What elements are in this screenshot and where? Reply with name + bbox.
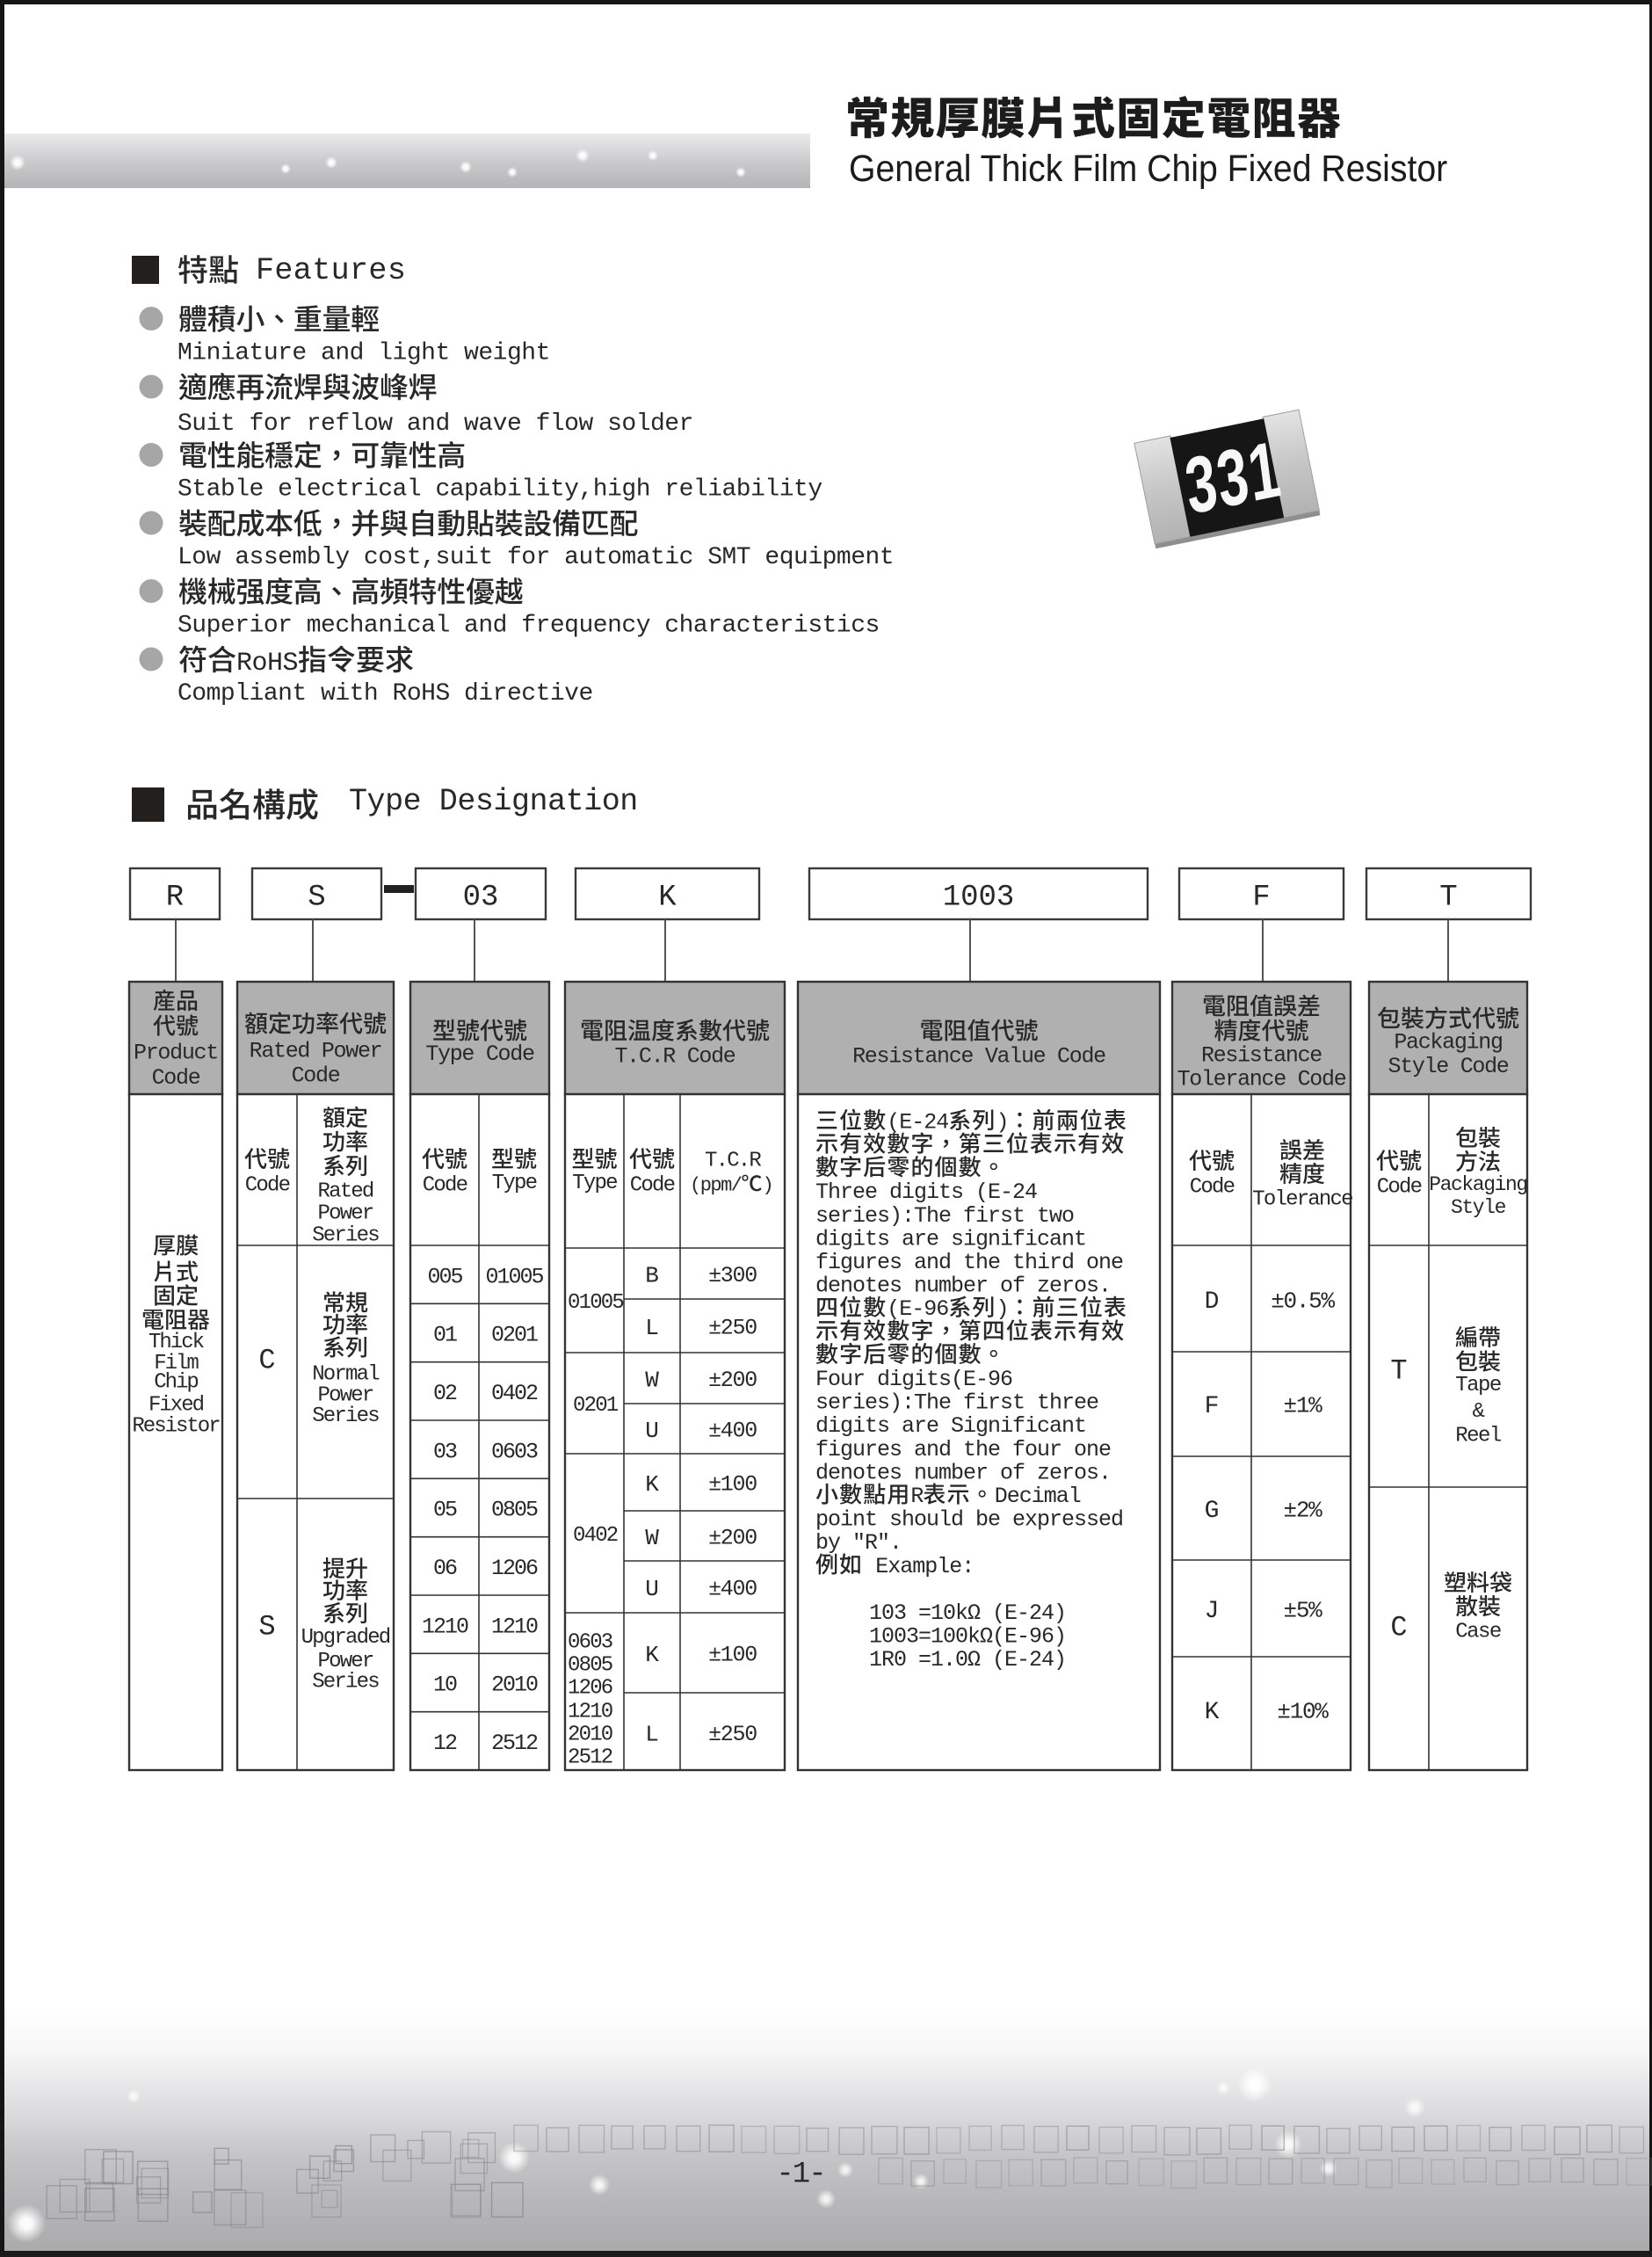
svg-text:Resistor: Resistor xyxy=(132,1415,220,1439)
svg-text:±0.5%: ±0.5% xyxy=(1271,1288,1335,1315)
svg-text:by "R".: by "R". xyxy=(815,1530,902,1556)
svg-text:1210: 1210 xyxy=(422,1614,468,1639)
svg-text:K: K xyxy=(645,1471,659,1498)
svg-text:±250: ±250 xyxy=(708,1722,757,1747)
svg-text:±300: ±300 xyxy=(708,1263,757,1288)
svg-text:T.C.R Code: T.C.R Code xyxy=(614,1044,735,1070)
svg-text:&: & xyxy=(1473,1400,1485,1424)
svg-text:digits are Significant: digits are Significant xyxy=(815,1413,1086,1439)
svg-text:U: U xyxy=(645,1576,659,1602)
svg-text:±400: ±400 xyxy=(708,1419,757,1444)
svg-text:denotes number of zeros.: denotes number of zeros. xyxy=(815,1460,1111,1485)
svg-text:): ) xyxy=(763,1175,773,1197)
svg-text:F: F xyxy=(1252,881,1270,914)
svg-text:series):The first three: series):The first three xyxy=(815,1390,1098,1416)
svg-text:01005: 01005 xyxy=(485,1264,543,1289)
svg-text:±100: ±100 xyxy=(708,1643,757,1668)
svg-text:Style Code: Style Code xyxy=(1388,1054,1508,1079)
svg-text:digits are significant: digits are significant xyxy=(815,1226,1086,1252)
svg-text:Features: Features xyxy=(256,253,406,288)
svg-text:L: L xyxy=(645,1722,659,1748)
svg-text:L: L xyxy=(645,1315,659,1341)
svg-text:figures and the four one: figures and the four one xyxy=(815,1437,1111,1462)
svg-text:Miniature and light weight: Miniature and light weight xyxy=(178,340,550,367)
svg-text:Tape: Tape xyxy=(1455,1374,1501,1397)
svg-text:Rated Power: Rated Power xyxy=(250,1039,382,1064)
svg-text:point should be expressed: point should be expressed xyxy=(815,1507,1123,1533)
svg-text:Code: Code xyxy=(152,1065,200,1091)
svg-text:Series: Series xyxy=(312,1404,379,1428)
svg-text:Code: Code xyxy=(1190,1176,1235,1200)
svg-text:±10%: ±10% xyxy=(1277,1699,1329,1725)
svg-text:Type Designation: Type Designation xyxy=(349,784,638,819)
svg-text:Four digits(E-96: Four digits(E-96 xyxy=(815,1367,1012,1392)
svg-text:±100: ±100 xyxy=(708,1472,757,1498)
svg-text:K: K xyxy=(1205,1699,1220,1726)
svg-text:G: G xyxy=(1205,1498,1220,1525)
svg-text:Decimal: Decimal xyxy=(995,1484,1081,1509)
svg-text:0201: 0201 xyxy=(491,1323,538,1348)
svg-text:General Thick Film Chip Fixed: General Thick Film Chip Fixed Resistor xyxy=(849,147,1448,189)
svg-text:Case: Case xyxy=(1455,1621,1501,1644)
svg-text:Low assembly cost,suit for aut: Low assembly cost,suit for automatic SMT… xyxy=(178,544,894,571)
svg-text:B: B xyxy=(645,1263,659,1289)
svg-text:): ) xyxy=(996,1109,1009,1135)
svg-text:Reel: Reel xyxy=(1455,1425,1502,1448)
svg-text:R: R xyxy=(166,881,184,914)
svg-text:06: 06 xyxy=(433,1556,457,1581)
svg-text:S: S xyxy=(258,1611,275,1644)
svg-text:Style: Style xyxy=(1451,1196,1506,1219)
svg-text:Code: Code xyxy=(1377,1176,1422,1200)
svg-text:103 =10kΩ (E-24): 103 =10kΩ (E-24) xyxy=(869,1600,1066,1626)
svg-text:0603: 0603 xyxy=(568,1631,612,1655)
svg-text:005: 005 xyxy=(427,1264,462,1289)
svg-text:T: T xyxy=(1439,881,1457,914)
svg-text:): ) xyxy=(996,1296,1009,1322)
svg-text:1003=100kΩ(E-96): 1003=100kΩ(E-96) xyxy=(869,1624,1066,1650)
svg-text:C: C xyxy=(1390,1612,1407,1644)
svg-text:-1-: -1- xyxy=(776,2158,824,2191)
svg-text:1206: 1206 xyxy=(491,1556,538,1581)
svg-text:1210: 1210 xyxy=(568,1701,612,1724)
svg-text:Example:: Example: xyxy=(875,1554,974,1579)
svg-text:0402: 0402 xyxy=(573,1524,618,1548)
svg-text:C: C xyxy=(258,1345,275,1377)
svg-text:01005: 01005 xyxy=(568,1291,623,1315)
svg-text:W: W xyxy=(645,1525,659,1551)
svg-text:R: R xyxy=(910,1484,924,1509)
svg-text:Packaging: Packaging xyxy=(1394,1030,1502,1056)
svg-text:Tolerance: Tolerance xyxy=(1252,1188,1352,1212)
svg-text:Type: Type xyxy=(572,1172,617,1195)
svg-text:Type Code: Type Code xyxy=(425,1041,534,1067)
svg-text:Tolerance Code: Tolerance Code xyxy=(1177,1067,1346,1092)
svg-text:Three digits (E-24: Three digits (E-24 xyxy=(815,1179,1037,1205)
svg-text:0805: 0805 xyxy=(568,1654,612,1678)
svg-text:U: U xyxy=(645,1418,659,1444)
svg-text:2512: 2512 xyxy=(568,1746,612,1770)
svg-text:Type: Type xyxy=(492,1172,537,1195)
svg-text:1003: 1003 xyxy=(943,881,1015,914)
svg-text:D: D xyxy=(1205,1288,1220,1316)
svg-text:RoHS: RoHS xyxy=(236,649,298,679)
svg-text:Code: Code xyxy=(630,1174,675,1198)
svg-text:Fixed: Fixed xyxy=(149,1394,204,1418)
svg-text:±5%: ±5% xyxy=(1284,1598,1323,1624)
svg-text:05: 05 xyxy=(433,1498,457,1523)
svg-text:Stable electrical capability,h: Stable electrical capability,high reliab… xyxy=(178,476,822,504)
svg-text:Code: Code xyxy=(423,1174,467,1198)
svg-text:2512: 2512 xyxy=(491,1731,538,1756)
svg-text:Suit for reflow and wave flow: Suit for reflow and wave flow solder xyxy=(178,410,693,438)
svg-text:0805: 0805 xyxy=(491,1498,538,1523)
svg-text:Resistance: Resistance xyxy=(1201,1043,1322,1069)
svg-text:Chip: Chip xyxy=(154,1370,198,1394)
svg-text:series):The first two: series):The first two xyxy=(815,1203,1074,1229)
svg-text:Superior mechanical and freque: Superior mechanical and frequency charac… xyxy=(178,613,880,640)
svg-text:2010: 2010 xyxy=(568,1724,612,1747)
svg-text:Power: Power xyxy=(317,1202,373,1226)
svg-text:01: 01 xyxy=(433,1323,457,1348)
svg-text:figures and the third one: figures and the third one xyxy=(815,1250,1123,1275)
svg-text:0402: 0402 xyxy=(491,1381,538,1406)
svg-text:Upgraded: Upgraded xyxy=(301,1626,390,1650)
svg-text:(ppm/: (ppm/ xyxy=(690,1175,742,1197)
svg-text:T: T xyxy=(1390,1355,1407,1388)
svg-text:Series: Series xyxy=(312,1224,379,1248)
svg-text:0201: 0201 xyxy=(573,1394,619,1418)
svg-text:02: 02 xyxy=(433,1381,457,1406)
svg-text:K: K xyxy=(645,1642,659,1668)
svg-text:10: 10 xyxy=(433,1673,457,1698)
svg-text:(E-24: (E-24 xyxy=(887,1109,948,1135)
svg-text:J: J xyxy=(1205,1598,1220,1625)
svg-text:1R0 =1.0Ω (E-24): 1R0 =1.0Ω (E-24) xyxy=(869,1647,1066,1673)
svg-text:±200: ±200 xyxy=(708,1368,757,1393)
svg-text:S: S xyxy=(308,881,325,914)
svg-text:Series: Series xyxy=(312,1671,379,1695)
svg-text:Compliant with RoHS directive: Compliant with RoHS directive xyxy=(178,680,593,708)
svg-text:±200: ±200 xyxy=(708,1526,757,1551)
svg-text:03: 03 xyxy=(463,881,499,914)
svg-text:Code: Code xyxy=(245,1174,290,1198)
svg-text:Rated: Rated xyxy=(317,1180,373,1204)
svg-text:W: W xyxy=(645,1368,659,1394)
svg-text:1206: 1206 xyxy=(568,1677,612,1701)
svg-text:K: K xyxy=(658,881,677,914)
svg-text:T.C.R: T.C.R xyxy=(705,1150,761,1173)
svg-text:03: 03 xyxy=(433,1439,457,1464)
svg-text:12: 12 xyxy=(433,1731,457,1756)
svg-text:±1%: ±1% xyxy=(1284,1393,1323,1419)
svg-text:Product: Product xyxy=(134,1041,218,1066)
svg-text:Packaging: Packaging xyxy=(1429,1173,1527,1196)
svg-text:±2%: ±2% xyxy=(1284,1498,1323,1524)
svg-text:2010: 2010 xyxy=(491,1673,538,1698)
svg-text:(E-96: (E-96 xyxy=(887,1296,948,1322)
svg-text:F: F xyxy=(1205,1393,1220,1420)
svg-text:Code: Code xyxy=(292,1063,340,1089)
svg-text:±250: ±250 xyxy=(708,1316,757,1341)
svg-text:±400: ±400 xyxy=(708,1577,757,1602)
svg-text:0603: 0603 xyxy=(491,1439,538,1464)
svg-text:Normal: Normal xyxy=(312,1363,380,1387)
svg-text:1210: 1210 xyxy=(491,1614,538,1639)
svg-text:denotes number of zeros.: denotes number of zeros. xyxy=(815,1274,1111,1299)
svg-text:Resistance Value Code: Resistance Value Code xyxy=(852,1044,1105,1070)
